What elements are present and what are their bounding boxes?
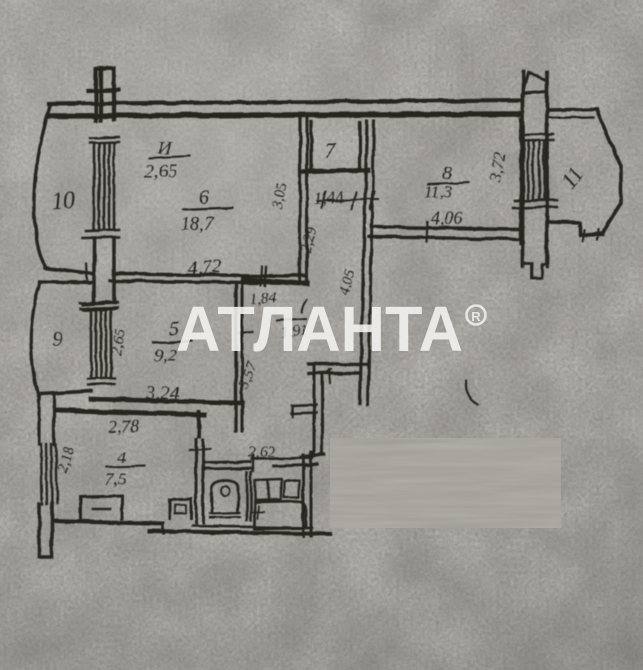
svg-text:2,78: 2,78 [108, 416, 141, 438]
svg-text:2,62: 2,62 [248, 444, 276, 461]
svg-text:2,65: 2,65 [144, 161, 177, 182]
svg-text:И: И [157, 138, 173, 159]
svg-text:10: 10 [50, 187, 76, 215]
svg-text:7: 7 [325, 139, 337, 163]
svg-text:R: R [471, 309, 481, 324]
svg-text:4: 4 [118, 448, 127, 467]
svg-text:9,2: 9,2 [154, 345, 177, 365]
svg-text:1,44: 1,44 [313, 187, 345, 208]
svg-text:АТЛАНТА: АТЛАНТА [176, 293, 463, 365]
svg-text:9: 9 [52, 327, 63, 351]
svg-text:11,3: 11,3 [424, 182, 453, 201]
svg-text:4,06: 4,06 [431, 208, 463, 228]
svg-text:6: 6 [199, 187, 209, 209]
svg-text:7,5: 7,5 [105, 470, 126, 489]
svg-text:3,24: 3,24 [145, 383, 180, 404]
svg-text:8: 8 [442, 163, 452, 184]
svg-text:4,72: 4,72 [188, 256, 223, 279]
svg-text:18,7: 18,7 [180, 214, 215, 235]
